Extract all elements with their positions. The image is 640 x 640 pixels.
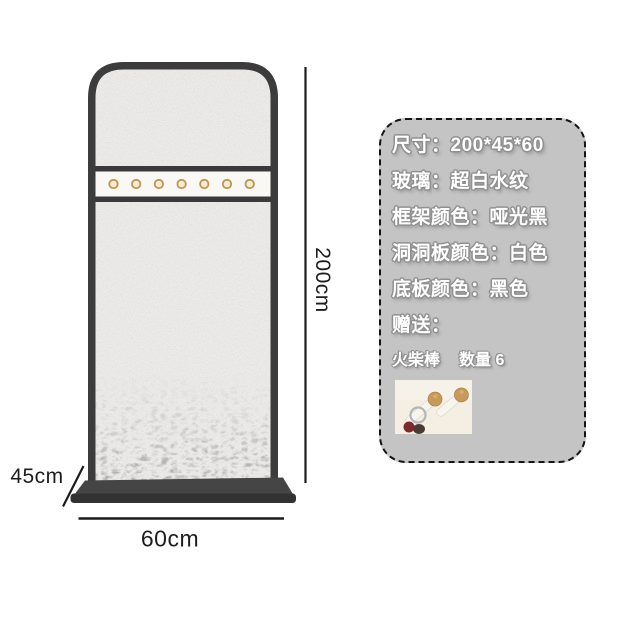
spec-row-pegboard-color: 洞洞板颜色：白色 xyxy=(392,236,574,272)
spec-row-gift: 赠送： xyxy=(392,308,574,344)
peg-hole xyxy=(177,180,185,188)
glass-ripple-texture xyxy=(95,375,271,481)
peg-hole xyxy=(109,180,117,188)
strip-top-bar xyxy=(96,166,271,172)
gift-item-label: 火柴棒 xyxy=(392,352,440,369)
spec-panel: 尺寸：200*45*60 玻璃：超白水纹 框架颜色：哑光黑 洞洞板颜色：白色 底… xyxy=(379,118,586,463)
peg-hole xyxy=(223,180,231,188)
gift-photo xyxy=(395,380,472,434)
gift-quantity-label: 数量 6 xyxy=(459,352,504,369)
spec-row-frame-color: 框架颜色：哑光黑 xyxy=(392,200,574,236)
spec-row-glass: 玻璃：超白水纹 xyxy=(392,164,574,200)
width-dimension-label: 60cm xyxy=(141,526,199,553)
peg-hole xyxy=(246,180,254,188)
spec-row-base-color: 底板颜色：黑色 xyxy=(392,272,574,308)
peg-hole xyxy=(200,180,208,188)
peg-hole xyxy=(132,180,140,188)
peg-hole xyxy=(155,180,163,188)
depth-dimension-label: 45cm xyxy=(10,465,63,489)
height-dimension-label: 200cm xyxy=(310,247,334,313)
dark-keychain xyxy=(413,424,425,434)
gift-row: 火柴棒数量 6 xyxy=(392,344,574,378)
gift-photo-illustration xyxy=(395,380,472,434)
base-plate-front xyxy=(71,494,297,504)
spec-row-size: 尺寸：200*45*60 xyxy=(392,128,574,164)
strip-bottom-bar xyxy=(96,197,271,203)
product-infographic: 200cm 60cm 45cm 尺寸：200*45*60 玻璃：超白水纹 框架颜… xyxy=(0,0,640,640)
red-keychain xyxy=(404,422,415,433)
